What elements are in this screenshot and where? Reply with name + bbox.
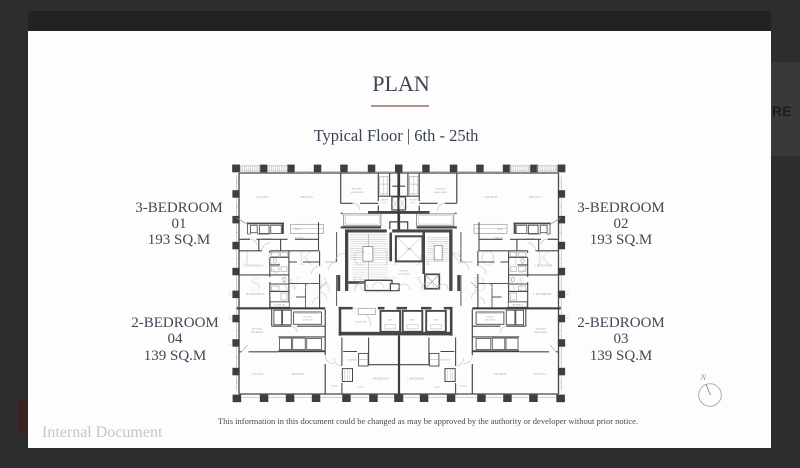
svg-text:WALK-IN: WALK-IN	[380, 183, 389, 186]
svg-text:BEDROOM: BEDROOM	[351, 191, 364, 194]
svg-text:JCK CHANOIK: JCK CHANOIK	[242, 246, 568, 270]
svg-text:BATHROOM: BATHROOM	[302, 318, 313, 321]
svg-text:PRIVATE: PRIVATE	[381, 199, 389, 202]
svg-text:BATH: BATH	[358, 386, 364, 389]
svg-text:MASTER: MASTER	[304, 316, 312, 319]
svg-text:WARDROBE: WARDROBE	[347, 359, 358, 362]
svg-text:SWARTY BM: SWARTY BM	[250, 272, 543, 296]
svg-text:LIFT: LIFT	[388, 319, 393, 321]
svg-text:N: N	[700, 373, 707, 382]
svg-text:LIFT: LIFT	[434, 319, 439, 321]
svg-text:BEDROOM: BEDROOM	[251, 331, 264, 334]
svg-text:LIVING: LIVING	[257, 195, 269, 199]
svg-text:BEDROOM 1: BEDROOM 1	[373, 378, 391, 381]
svg-text:WARDROBE: WARDROBE	[274, 304, 286, 307]
svg-text:EX ROOM: EX ROOM	[355, 320, 367, 323]
svg-text:DINING: DINING	[292, 372, 305, 376]
svg-text:FOYER: FOYER	[331, 385, 338, 387]
svg-text:D1: D1	[229, 292, 231, 294]
svg-text:LIVING: LIVING	[252, 372, 264, 376]
svg-text:DINING: DINING	[301, 195, 314, 199]
svg-text:LIFT: LIFT	[383, 202, 388, 204]
svg-text:LIFT: LIFT	[410, 319, 415, 321]
svg-text:D1: D1	[229, 316, 231, 318]
